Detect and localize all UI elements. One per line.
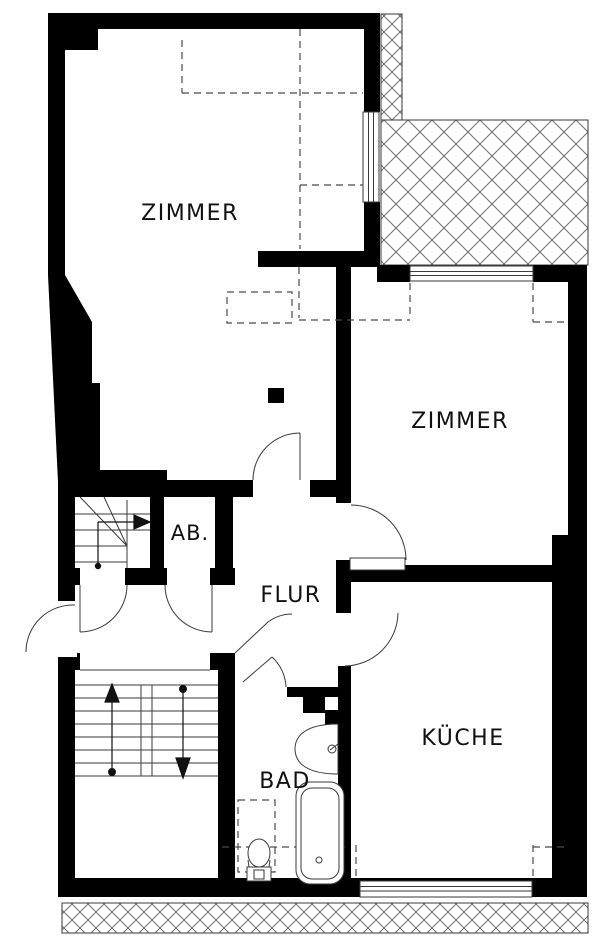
- column-post: [268, 388, 284, 403]
- wall-zimmer1-bottom-right: [258, 251, 380, 267]
- floor-plan-page: ZIMMER ZIMMER AB. FLUR KÜCHE BAD: [0, 0, 600, 936]
- wall-bad-top-step2: [303, 697, 325, 713]
- wall-hall-top-seg2: [125, 568, 167, 585]
- wall-under-balcony-left: [377, 265, 410, 282]
- window-zimmer2-balcony: [410, 266, 533, 281]
- bathtub-icon: [296, 782, 344, 884]
- wall-zimmer1-bottom-mid: [233, 480, 253, 497]
- balcony-hatch-area: [381, 120, 588, 265]
- toilet-icon: [247, 839, 271, 881]
- wall-right-lower: [552, 535, 587, 880]
- wall-zimmer1-bottom-left: [58, 480, 217, 497]
- balcony-hatch-strip: [381, 14, 402, 120]
- toilet-tank-detail: [254, 870, 264, 879]
- wall-zimmer1-door-stub: [310, 480, 337, 497]
- wall-bad-left: [218, 653, 235, 880]
- wall-hall-top-seg1: [58, 568, 80, 585]
- floor-plan-drawing: ZIMMER ZIMMER AB. FLUR KÜCHE BAD: [0, 0, 600, 936]
- wall-zimmer1-right-upper: [364, 13, 380, 112]
- window-kueche: [360, 881, 532, 897]
- wall-left-upper: [48, 13, 65, 275]
- room-label-ab: AB.: [171, 521, 209, 545]
- tub-drain: [316, 857, 322, 863]
- wall-step-under-zimmer1: [98, 470, 167, 480]
- room-label-zimmer-right: ZIMMER: [411, 409, 509, 434]
- window-frame: [363, 112, 379, 202]
- wall-left-lower: [58, 482, 75, 897]
- wall-flur-zimmer2: [336, 251, 351, 503]
- room-label-bad: BAD: [259, 769, 311, 794]
- toilet-bowl: [248, 839, 270, 867]
- room-label-zimmer-top-left: ZIMMER: [141, 201, 239, 226]
- window-frame: [360, 881, 532, 897]
- wall-hall-top-seg3: [210, 568, 235, 585]
- wall-flur-kueche-stub: [336, 560, 351, 613]
- window-zimmer1-balcony-door: [363, 112, 379, 202]
- room-label-flur: FLUR: [260, 583, 321, 608]
- window-frame: [410, 266, 533, 281]
- wall-under-balcony-right: [533, 265, 587, 282]
- ground-hatch-strip: [62, 903, 588, 933]
- wall-bad-top-step1: [287, 687, 345, 697]
- tub-inner: [301, 788, 339, 879]
- door-opening-left-wall: [56, 601, 77, 657]
- room-label-kueche: KÜCHE: [421, 725, 504, 751]
- wall-right-upper: [568, 282, 587, 537]
- door-leaf: [350, 558, 405, 570]
